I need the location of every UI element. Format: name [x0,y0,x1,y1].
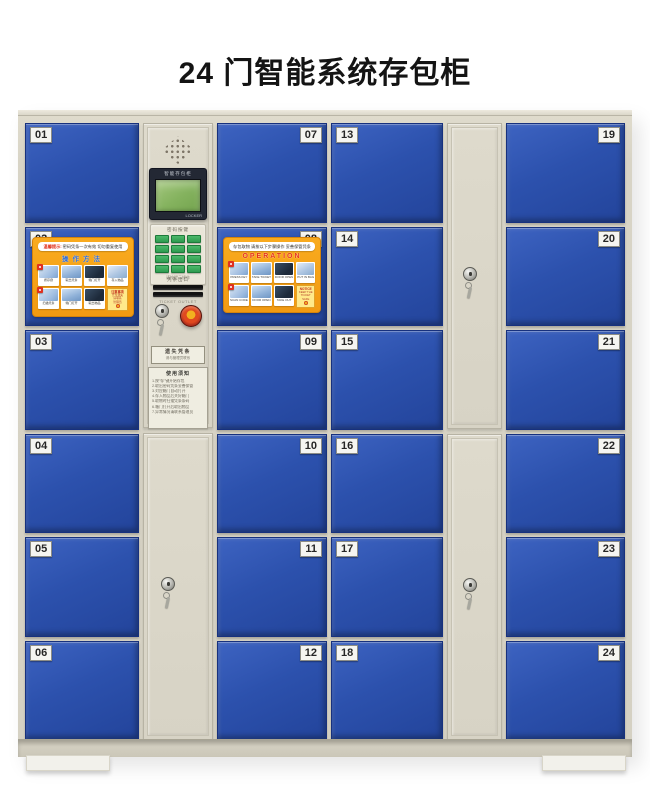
step-caption: PRESS KEY [230,275,248,279]
sticker-step: 取出凭条 [61,265,82,286]
keypad-key[interactable] [171,245,185,253]
step-photo [252,263,271,275]
sticker-note: NOTICEKEEP THETICKETSAFE [296,285,315,308]
sticker-step: 箱门打开 [84,265,105,286]
keypad-key[interactable] [187,255,201,263]
info-plate-line2: 请与管理员联系 [152,356,204,361]
locker-door-02[interactable]: 02温馨提示:密码凭条一次有效 切勿重复使用操作方法按存键取出凭条箱门打开存入物… [25,227,139,327]
ticket-slot-opening-2 [153,292,203,298]
locker-door-18[interactable]: 18 [331,641,443,741]
step-caption: 取出物品 [85,301,104,305]
cabinet-foot-right [542,755,626,771]
door-number-label: 13 [336,127,358,143]
step-caption: 扫描凭条 [39,301,58,305]
info-plate-line1: 遗失凭条 [152,348,204,355]
locker-door-04[interactable]: 04 [25,434,139,534]
door-column-1: 0102温馨提示:密码凭条一次有效 切勿重复使用操作方法按存键取出凭条箱门打开存… [25,123,139,740]
step-caption: 按存键 [39,278,58,282]
sticker-step: DOOR OPEN [251,285,272,306]
cabinet-doors-area: 0102温馨提示:密码凭条一次有效 切勿重复使用操作方法按存键取出凭条箱门打开存… [25,123,625,740]
locker-door-14[interactable]: 14 [331,227,443,327]
instruction-sticker-en: 存包取物 请按以下步骤操作 妥善保管凭条OPERATIONPRESS KEYTA… [223,237,321,313]
door-number-label: 10 [300,438,322,454]
locker-door-12[interactable]: 12 [217,641,327,741]
info-plate: 遗失凭条 请与管理员联系 [151,346,205,364]
keypad-key[interactable] [187,265,201,273]
lock-face-icon [463,578,477,592]
sticker-banner: 存包取物 请按以下步骤操作 妥善保管凭条 [229,242,315,251]
step-caption: SCAN CODE [230,298,248,302]
locker-door-21[interactable]: 21 [506,330,625,430]
step-photo [275,263,293,275]
key-lock-icon[interactable] [159,577,175,611]
usage-notice-lines: 1.按"存"键开始存包2.取出密码凭条妥善保管3.对应箱门自动打开4.存入物品后… [152,379,204,415]
step-caption: TAKE TICKET [252,275,271,279]
panel-lock-row [144,302,212,342]
locker-door-19[interactable]: 19 [506,123,625,223]
door-column-4: 192021222324 [506,123,625,740]
locker-door-03[interactable]: 03 [25,330,139,430]
step-photo [85,266,104,278]
door-number-label: 15 [336,334,358,350]
usage-notice: 使用须知 1.按"存"键开始存包2.取出密码凭条妥善保管3.对应箱门自动打开4.… [148,367,208,429]
keypad-key[interactable] [155,255,169,263]
key-lock-icon[interactable] [153,304,169,338]
sticker-step: 按存键 [38,265,59,286]
step-caption: 箱门打开 [85,278,104,282]
step-photo [85,289,104,301]
locker-door-17[interactable]: 17 [331,537,443,637]
lcd-brand-text: LOCKER [150,213,206,218]
locker-door-13[interactable]: 13 [331,123,443,223]
locker-cabinet: 0102温馨提示:密码凭条一次有效 切勿重复使用操作方法按存键取出凭条箱门打开存… [18,110,632,757]
door-column-2: 0708存包取物 请按以下步骤操作 妥善保管凭条OPERATIONPRESS K… [217,123,327,740]
usage-notice-line: 7.异常情况请联系管理员 [152,410,204,415]
service-door-control-bottom[interactable] [143,433,213,740]
emergency-button[interactable] [180,305,202,327]
step-caption: DOOR OPEN [275,275,293,279]
usage-notice-title: 使用须知 [152,370,204,377]
service-door-top[interactable] [447,123,502,429]
sticker-steps: PRESS KEYTAKE TICKETDOOR OPENPUT IN BAGS… [229,262,315,308]
locker-door-16[interactable]: 16 [331,434,443,534]
keypad-label: 密码按键 [155,227,201,233]
step-photo [108,266,127,278]
keypad-buttons[interactable] [155,235,201,273]
door-number-label: 17 [336,541,358,557]
door-number-label: 11 [300,541,322,557]
sticker-step: TAKE OUT [274,285,294,306]
lcd-screen [155,179,201,212]
lcd-display: 智能存包柜 LOCKER [149,168,207,220]
service-door-bottom[interactable] [447,434,502,740]
keypad-key[interactable] [171,265,185,273]
keypad-key[interactable] [171,255,185,263]
locker-door-09[interactable]: 09 [217,330,327,430]
locker-door-06[interactable]: 06 [25,641,139,741]
door-number-label: 20 [598,231,620,247]
step-caption: TAKE OUT [275,298,293,302]
door-number-label: 24 [598,645,620,661]
sticker-step: 箱门打开 [61,288,82,309]
lcd-header-text: 智能存包柜 [150,171,206,177]
ticket-slot: 凭条出口 TICKET OUTLET [153,277,203,304]
sticker-banner: 温馨提示:密码凭条一次有效 切勿重复使用 [38,242,128,251]
control-panel: 智能存包柜 LOCKER 密码按键 请按提示操作 凭条出口 TICKET OUT… [143,123,213,428]
locker-door-01[interactable]: 01 [25,123,139,223]
keypad-key[interactable] [155,265,169,273]
sticker-step: 扫描凭条 [38,288,59,309]
lock-face-icon [161,577,175,591]
ticket-slot-opening [153,285,203,291]
door-number-label: 12 [300,645,322,661]
door-number-label: 01 [30,127,52,143]
cabinet-foot-left [26,755,110,771]
step-photo [275,286,293,298]
step-caption: 存入物品 [108,278,127,282]
keypad-key[interactable] [171,235,185,243]
lock-face-icon [155,304,169,318]
door-number-label: 14 [336,231,358,247]
sticker-step: TAKE TICKET [251,262,272,283]
locker-door-10[interactable]: 10 [217,434,327,534]
door-number-label: 23 [598,541,620,557]
door-column-3: 131415161718 [331,123,443,740]
keypad[interactable]: 密码按键 请按提示操作 [150,224,206,285]
step-caption: PUT IN BAG [297,275,314,279]
locker-door-11[interactable]: 11 [217,537,327,637]
locker-door-20[interactable]: 20 [506,227,625,327]
step-photo [297,263,314,275]
cabinet-top-edge [18,110,632,116]
lock-face-icon [463,267,477,281]
instruction-sticker-cn: 温馨提示:密码凭条一次有效 切勿重复使用操作方法按存键取出凭条箱门打开存入物品扫… [32,237,134,317]
sticker-title: 操作方法 [33,253,133,263]
keypad-key[interactable] [187,245,201,253]
ticket-slot-label: 凭条出口 [153,277,203,283]
step-flag-icon [228,284,234,290]
step-caption: 取出凭条 [62,278,81,282]
sticker-step: 存入物品 [107,265,128,286]
key-lock-icon[interactable] [461,267,477,301]
step-caption: DOOR OPEN [252,298,271,302]
sticker-note: 注意事项凭条遗失请联系管理员 [107,288,128,311]
locker-door-05[interactable]: 05 [25,537,139,637]
key-lock-icon[interactable] [461,578,477,612]
page-title: 24 门智能系统存包柜 [0,48,650,92]
locker-door-07[interactable]: 07 [217,123,327,223]
door-number-label: 22 [598,438,620,454]
step-photo [252,286,271,298]
sticker-title: OPERATION [224,253,320,260]
door-number-label: 16 [336,438,358,454]
door-number-label: 06 [30,645,52,661]
step-photo [62,289,81,301]
door-number-label: 04 [30,438,52,454]
door-number-label: 03 [30,334,52,350]
key-stem-icon [165,597,170,608]
sticker-step: PRESS KEY [229,262,249,283]
control-column: 智能存包柜 LOCKER 密码按键 请按提示操作 凭条出口 TICKET OUT… [143,123,213,740]
sticker-step: DOOR OPEN [274,262,294,283]
locker-door-08[interactable]: 08存包取物 请按以下步骤操作 妥善保管凭条OPERATIONPRESS KEY… [217,227,327,327]
keypad-key[interactable] [187,235,201,243]
door-number-label: 19 [598,127,620,143]
sticker-step: 取出物品 [84,288,105,309]
step-flag-icon [37,287,43,293]
door-number-label: 05 [30,541,52,557]
step-flag-icon [228,261,234,267]
sticker-step: SCAN CODE [229,285,249,306]
locker-door-15[interactable]: 15 [331,330,443,430]
cabinet-base [18,739,632,757]
step-photo [62,266,81,278]
door-number-label: 18 [336,645,358,661]
door-number-label: 21 [598,334,620,350]
keypad-key[interactable] [155,245,169,253]
sticker-steps: 按存键取出凭条箱门打开存入物品扫描凭条箱门打开取出物品注意事项凭条遗失请联系管理… [38,265,128,311]
step-caption: 箱门打开 [62,301,81,305]
locker-door-24[interactable]: 24 [506,641,625,741]
locker-door-22[interactable]: 22 [506,434,625,534]
door-number-label: 09 [300,334,322,350]
locker-door-23[interactable]: 23 [506,537,625,637]
speaker-grille-icon [162,136,194,164]
door-number-label: 07 [300,127,322,143]
sticker-step: PUT IN BAG [296,262,315,283]
service-column [447,123,502,740]
keypad-key[interactable] [155,235,169,243]
step-flag-icon [37,264,43,270]
